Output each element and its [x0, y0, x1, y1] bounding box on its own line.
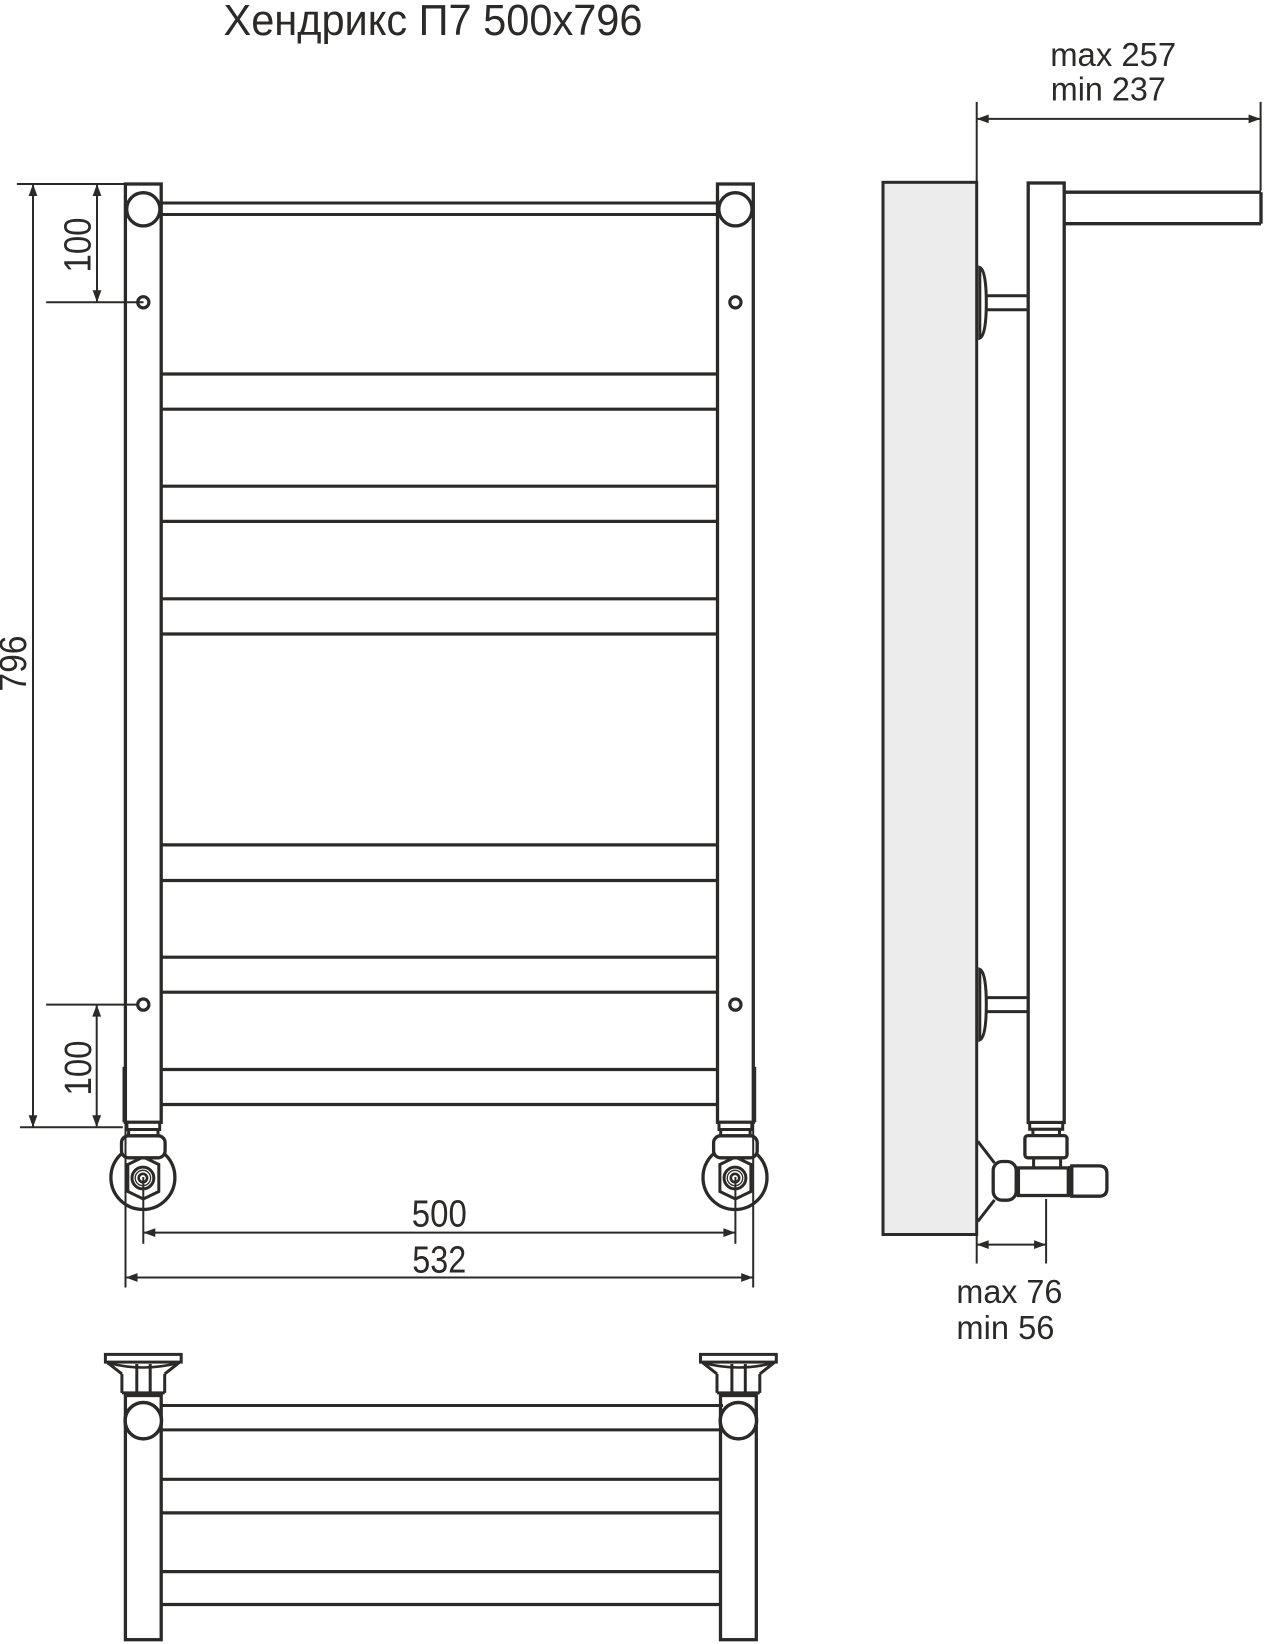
svg-text:100: 100 — [58, 218, 100, 273]
svg-text:100: 100 — [58, 1041, 100, 1096]
svg-text:min 56: min 56 — [956, 1309, 1054, 1346]
svg-text:Хендрикс П7 500x796: Хендрикс П7 500x796 — [224, 0, 643, 45]
svg-text:796: 796 — [0, 636, 35, 692]
svg-text:min 237: min 237 — [1051, 70, 1166, 107]
svg-text:532: 532 — [412, 1240, 466, 1282]
svg-text:500: 500 — [412, 1194, 467, 1236]
svg-text:max 257: max 257 — [1050, 36, 1176, 73]
svg-text:max 76: max 76 — [956, 1273, 1062, 1310]
